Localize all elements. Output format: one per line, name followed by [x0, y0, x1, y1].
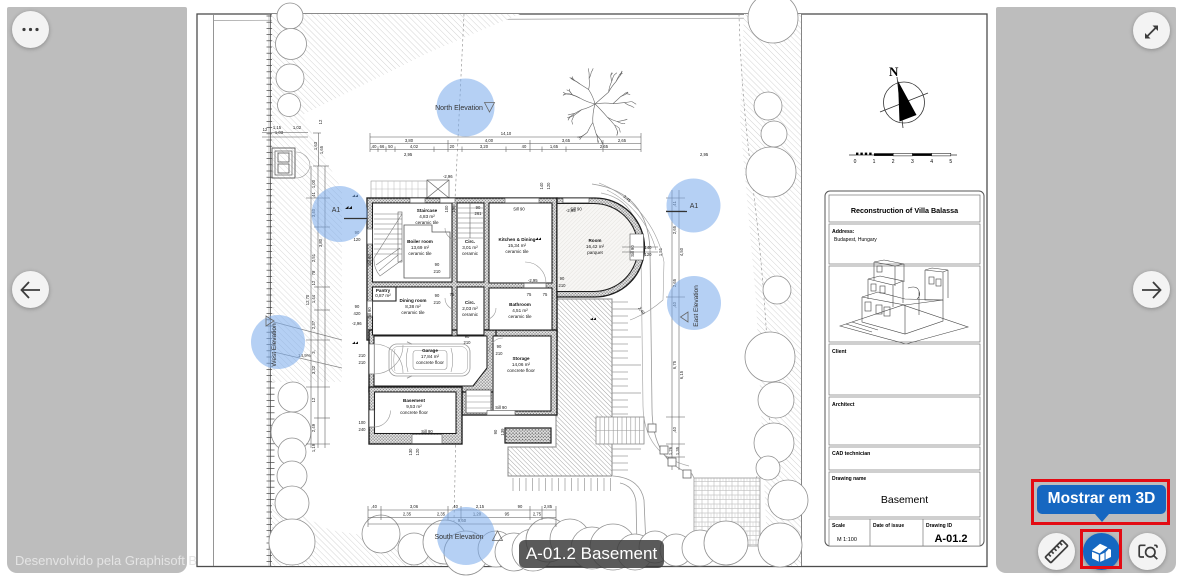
- svg-text:3: 3: [911, 159, 914, 165]
- svg-text:6,15: 6,15: [679, 370, 684, 379]
- svg-text:75: 75: [527, 292, 532, 297]
- svg-text:Sill 90: Sill 90: [421, 429, 433, 434]
- svg-text:M 1:100: M 1:100: [837, 537, 857, 543]
- svg-text:,41: ,41: [311, 191, 316, 197]
- svg-text:Date of issue: Date of issue: [873, 523, 904, 529]
- svg-text:Storage: Storage: [512, 356, 530, 361]
- svg-text:140: 140: [645, 245, 653, 250]
- svg-text:Basement: Basement: [881, 494, 928, 506]
- svg-text:East Elevation: East Elevation: [693, 285, 700, 327]
- svg-text:100: 100: [444, 205, 449, 213]
- svg-text:1,00: 1,00: [311, 179, 316, 188]
- svg-text:2,15: 2,15: [476, 504, 485, 509]
- svg-text:3,80: 3,80: [318, 238, 323, 247]
- svg-text:210: 210: [434, 269, 442, 274]
- svg-text:120: 120: [546, 182, 551, 190]
- svg-text:90: 90: [518, 504, 523, 509]
- svg-text:2,75: 2,75: [533, 512, 542, 517]
- svg-text:12: 12: [318, 119, 323, 124]
- svg-text:Scale: Scale: [832, 523, 845, 529]
- svg-text:1,65: 1,65: [319, 145, 324, 154]
- svg-text:Garage: Garage: [422, 348, 438, 353]
- svg-text:95: 95: [505, 512, 510, 517]
- svg-text:90: 90: [465, 334, 470, 339]
- svg-text:12: 12: [311, 397, 316, 402]
- svg-text:15,34 m²: 15,34 m²: [508, 243, 527, 248]
- svg-text:1,26: 1,26: [668, 446, 673, 455]
- svg-text:140: 140: [539, 182, 544, 190]
- svg-text:2,95: 2,95: [700, 152, 709, 157]
- svg-text:90: 90: [493, 429, 498, 434]
- svg-text:ceramic tile: ceramic tile: [408, 251, 432, 256]
- svg-text:4,50: 4,50: [679, 247, 684, 256]
- svg-text:A1: A1: [690, 203, 699, 210]
- svg-text:2,37: 2,37: [311, 320, 316, 329]
- svg-text:66: 66: [380, 144, 385, 149]
- svg-text:Sill 90: Sill 90: [367, 254, 372, 266]
- svg-text:210: 210: [496, 351, 504, 356]
- svg-text:concrete floor: concrete floor: [507, 368, 535, 373]
- svg-text:Architect: Architect: [832, 402, 855, 408]
- svg-text:,40: ,40: [672, 426, 677, 432]
- svg-text:Staircase: Staircase: [417, 208, 438, 213]
- svg-text:90: 90: [497, 344, 502, 349]
- svg-text:1,65: 1,65: [550, 144, 559, 149]
- svg-text:South Elevation: South Elevation: [434, 534, 483, 541]
- svg-text:40: 40: [522, 144, 527, 149]
- svg-text:1,02: 1,02: [293, 125, 302, 130]
- svg-text:75: 75: [450, 292, 455, 297]
- svg-text:14,10: 14,10: [501, 131, 512, 136]
- svg-text:4,51 m²: 4,51 m²: [512, 308, 528, 313]
- svg-text:9,53 m²: 9,53 m²: [406, 404, 422, 409]
- svg-text:Basement: Basement: [403, 398, 425, 403]
- svg-text:6,75: 6,75: [672, 360, 677, 369]
- svg-text:2,65: 2,65: [672, 225, 677, 234]
- svg-text:1,63: 1,63: [313, 141, 318, 150]
- svg-text:Drawing ID: Drawing ID: [926, 523, 953, 529]
- svg-text:Boiler room: Boiler room: [407, 239, 433, 244]
- svg-text:2,35: 2,35: [437, 512, 446, 517]
- svg-text:Sill 90: Sill 90: [513, 207, 525, 212]
- svg-text:Sill 90: Sill 90: [495, 405, 507, 410]
- svg-text:-2,95: -2,95: [528, 278, 538, 283]
- svg-text:North Elevation: North Elevation: [435, 105, 483, 112]
- svg-text:ceramic tile: ceramic tile: [505, 249, 529, 254]
- svg-text:50: 50: [388, 144, 393, 149]
- svg-text:16,42 m²: 16,42 m²: [586, 244, 605, 249]
- svg-text:2,85: 2,85: [544, 504, 553, 509]
- svg-text:-2,96: -2,96: [443, 174, 453, 179]
- svg-text:261: 261: [475, 211, 483, 216]
- svg-text:Circ.: Circ.: [465, 300, 475, 305]
- svg-text:13,69 m²: 13,69 m²: [411, 245, 430, 250]
- svg-text:3,65: 3,65: [562, 138, 571, 143]
- svg-text:,40: ,40: [371, 144, 377, 149]
- svg-text:4,00: 4,00: [485, 138, 494, 143]
- svg-text:-2,96: -2,96: [352, 321, 362, 326]
- svg-text:210: 210: [464, 340, 472, 345]
- svg-text:West Elevation: West Elevation: [271, 323, 278, 367]
- svg-text:20: 20: [450, 144, 455, 149]
- svg-text:120: 120: [645, 252, 653, 257]
- svg-text:210: 210: [559, 283, 567, 288]
- svg-text:139: 139: [500, 428, 505, 436]
- svg-text:2,03 m²: 2,03 m²: [462, 306, 478, 311]
- svg-text:2,35: 2,35: [403, 512, 412, 517]
- svg-text:parquet: parquet: [587, 250, 603, 255]
- svg-text:2,51: 2,51: [311, 253, 316, 262]
- svg-text:ceramic: ceramic: [462, 312, 479, 317]
- svg-text:2,49: 2,49: [311, 423, 316, 432]
- svg-text:ceramic tile: ceramic tile: [415, 220, 439, 225]
- svg-text:-2,95: -2,95: [566, 208, 576, 213]
- svg-text:210: 210: [434, 300, 442, 305]
- svg-text:12: 12: [263, 127, 268, 132]
- svg-text:90: 90: [476, 205, 481, 210]
- svg-text:Budapest, Hungary: Budapest, Hungary: [834, 237, 877, 243]
- svg-text:Circ.: Circ.: [465, 239, 475, 244]
- svg-text:210: 210: [359, 353, 367, 358]
- svg-text:90: 90: [435, 293, 440, 298]
- svg-text:3,32: 3,32: [311, 365, 316, 374]
- svg-text:CAD technician: CAD technician: [832, 451, 870, 457]
- svg-text:Drawing name: Drawing name: [832, 476, 866, 482]
- svg-text:3,06: 3,06: [410, 504, 419, 509]
- svg-text:210: 210: [359, 360, 367, 365]
- svg-text:14,06 m²: 14,06 m²: [512, 362, 531, 367]
- svg-text:Reconstruction of Villa Balass: Reconstruction of Villa Balassa: [851, 206, 959, 215]
- svg-text:12: 12: [311, 280, 316, 285]
- svg-text:N: N: [889, 64, 899, 79]
- svg-text:Client: Client: [832, 349, 847, 355]
- svg-text:4: 4: [930, 159, 933, 165]
- svg-text:concrete floor: concrete floor: [416, 360, 444, 365]
- svg-text:100: 100: [359, 420, 367, 425]
- svg-text:Sill 90: Sill 90: [367, 307, 372, 319]
- svg-text:0,87 m²: 0,87 m²: [375, 293, 391, 298]
- svg-text:Kitchen & Dining: Kitchen & Dining: [498, 237, 535, 242]
- svg-text:130: 130: [408, 448, 413, 456]
- svg-text:concrete floor: concrete floor: [400, 410, 428, 415]
- svg-text:Address:: Address:: [832, 229, 855, 235]
- svg-text:3,01 m²: 3,01 m²: [462, 245, 478, 250]
- svg-text:12,70: 12,70: [305, 294, 310, 305]
- svg-text:3,: 3,: [311, 350, 316, 354]
- svg-text:420: 420: [354, 311, 362, 316]
- svg-text:195: 195: [451, 205, 456, 213]
- svg-text:3,80: 3,80: [405, 138, 414, 143]
- svg-text:ceramic tile: ceramic tile: [401, 310, 425, 315]
- svg-text:120: 120: [415, 448, 420, 456]
- svg-text:17,84 m²: 17,84 m²: [421, 354, 440, 359]
- svg-text:2,65: 2,65: [618, 138, 627, 143]
- svg-text:ceramic: ceramic: [462, 251, 479, 256]
- svg-text:1,19: 1,19: [311, 443, 316, 452]
- svg-text:78: 78: [311, 270, 316, 275]
- svg-text:1,35: 1,35: [675, 446, 680, 455]
- svg-text:90: 90: [560, 276, 565, 281]
- svg-text:120: 120: [354, 237, 362, 242]
- svg-text:Sill 90: Sill 90: [630, 245, 635, 257]
- svg-text:5: 5: [949, 159, 952, 165]
- svg-text:2,95: 2,95: [404, 152, 413, 157]
- svg-text:Dining room: Dining room: [399, 298, 426, 303]
- svg-text:75: 75: [543, 292, 548, 297]
- svg-text:1,44: 1,44: [311, 294, 316, 303]
- svg-text:90: 90: [435, 262, 440, 267]
- svg-text:Room: Room: [588, 238, 601, 243]
- svg-text:3,20: 3,20: [480, 144, 489, 149]
- svg-text:240: 240: [359, 427, 367, 432]
- svg-text:4,02: 4,02: [410, 144, 419, 149]
- svg-text:1: 1: [873, 159, 876, 165]
- svg-text:0: 0: [854, 159, 857, 165]
- svg-text:4,83 m²: 4,83 m²: [419, 214, 435, 219]
- svg-text:90: 90: [355, 304, 360, 309]
- svg-text:2,65: 2,65: [600, 144, 609, 149]
- svg-text:8,38 m²: 8,38 m²: [405, 304, 421, 309]
- svg-text:Bathroom: Bathroom: [509, 302, 531, 307]
- svg-text:2: 2: [892, 159, 895, 165]
- svg-text:ceramic tile: ceramic tile: [508, 314, 532, 319]
- svg-text:A1: A1: [332, 207, 341, 214]
- svg-text:A-01.2: A-01.2: [934, 533, 967, 545]
- svg-text:,40: ,40: [371, 504, 377, 509]
